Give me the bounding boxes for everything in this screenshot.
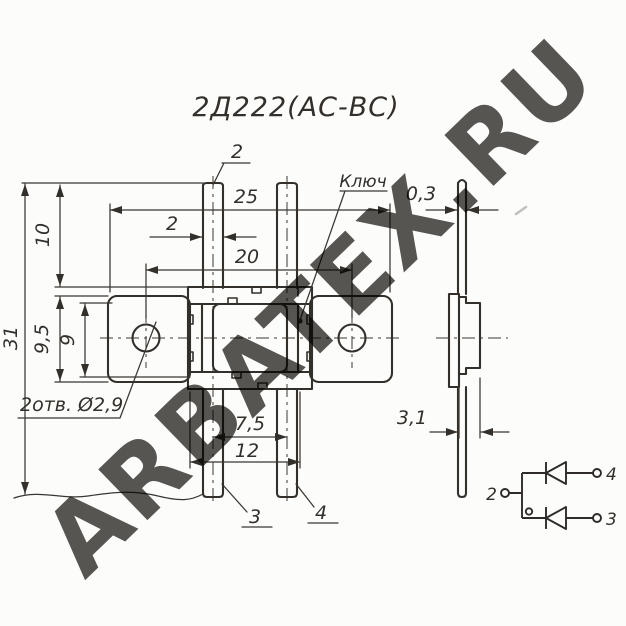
side-body-bulge: [459, 297, 480, 374]
schematic-diagram: 2 4 3: [486, 462, 617, 530]
scan-artifact-mark: [516, 207, 526, 214]
page-title: 2Д222(АС-ВС): [192, 92, 399, 123]
schematic-wires: [509, 473, 593, 518]
common-node-circle: [526, 508, 532, 514]
holes-note-text: 2отв. Ø2,9: [20, 394, 123, 416]
schematic-pin4-label: 4: [606, 465, 617, 485]
dim-text-31: 31: [0, 326, 22, 350]
dim-text-9-5: 9,5: [31, 324, 53, 354]
dim-text-10: 10: [32, 223, 54, 247]
technical-drawing: 2 4 3 25 2 20 31 10: [0, 0, 626, 626]
schematic-pin2-label: 2: [486, 485, 497, 505]
pin2-text: 2: [231, 141, 243, 163]
terminal-pin3: [593, 514, 601, 522]
dim-text-2: 2: [166, 213, 178, 235]
schematic-pin3-label: 3: [606, 510, 617, 530]
pin4-text: 4: [315, 502, 327, 524]
dim-text-25: 25: [234, 186, 258, 208]
side-flange: [449, 294, 459, 387]
dim-text-3-1: 3,1: [397, 407, 427, 429]
dim-text-9: 9: [57, 334, 79, 346]
pin3-text: 3: [249, 506, 261, 528]
pin2-leader: [213, 163, 250, 185]
diode-bottom: [546, 507, 566, 529]
terminal-pin2: [501, 489, 509, 497]
terminal-pin4: [593, 469, 601, 477]
dim-text-20: 20: [235, 246, 259, 268]
diode-top: [546, 462, 566, 484]
datasheet-drawing-page: 2 4 3 25 2 20 31 10: [0, 0, 626, 626]
pin3-leader: [222, 484, 272, 527]
